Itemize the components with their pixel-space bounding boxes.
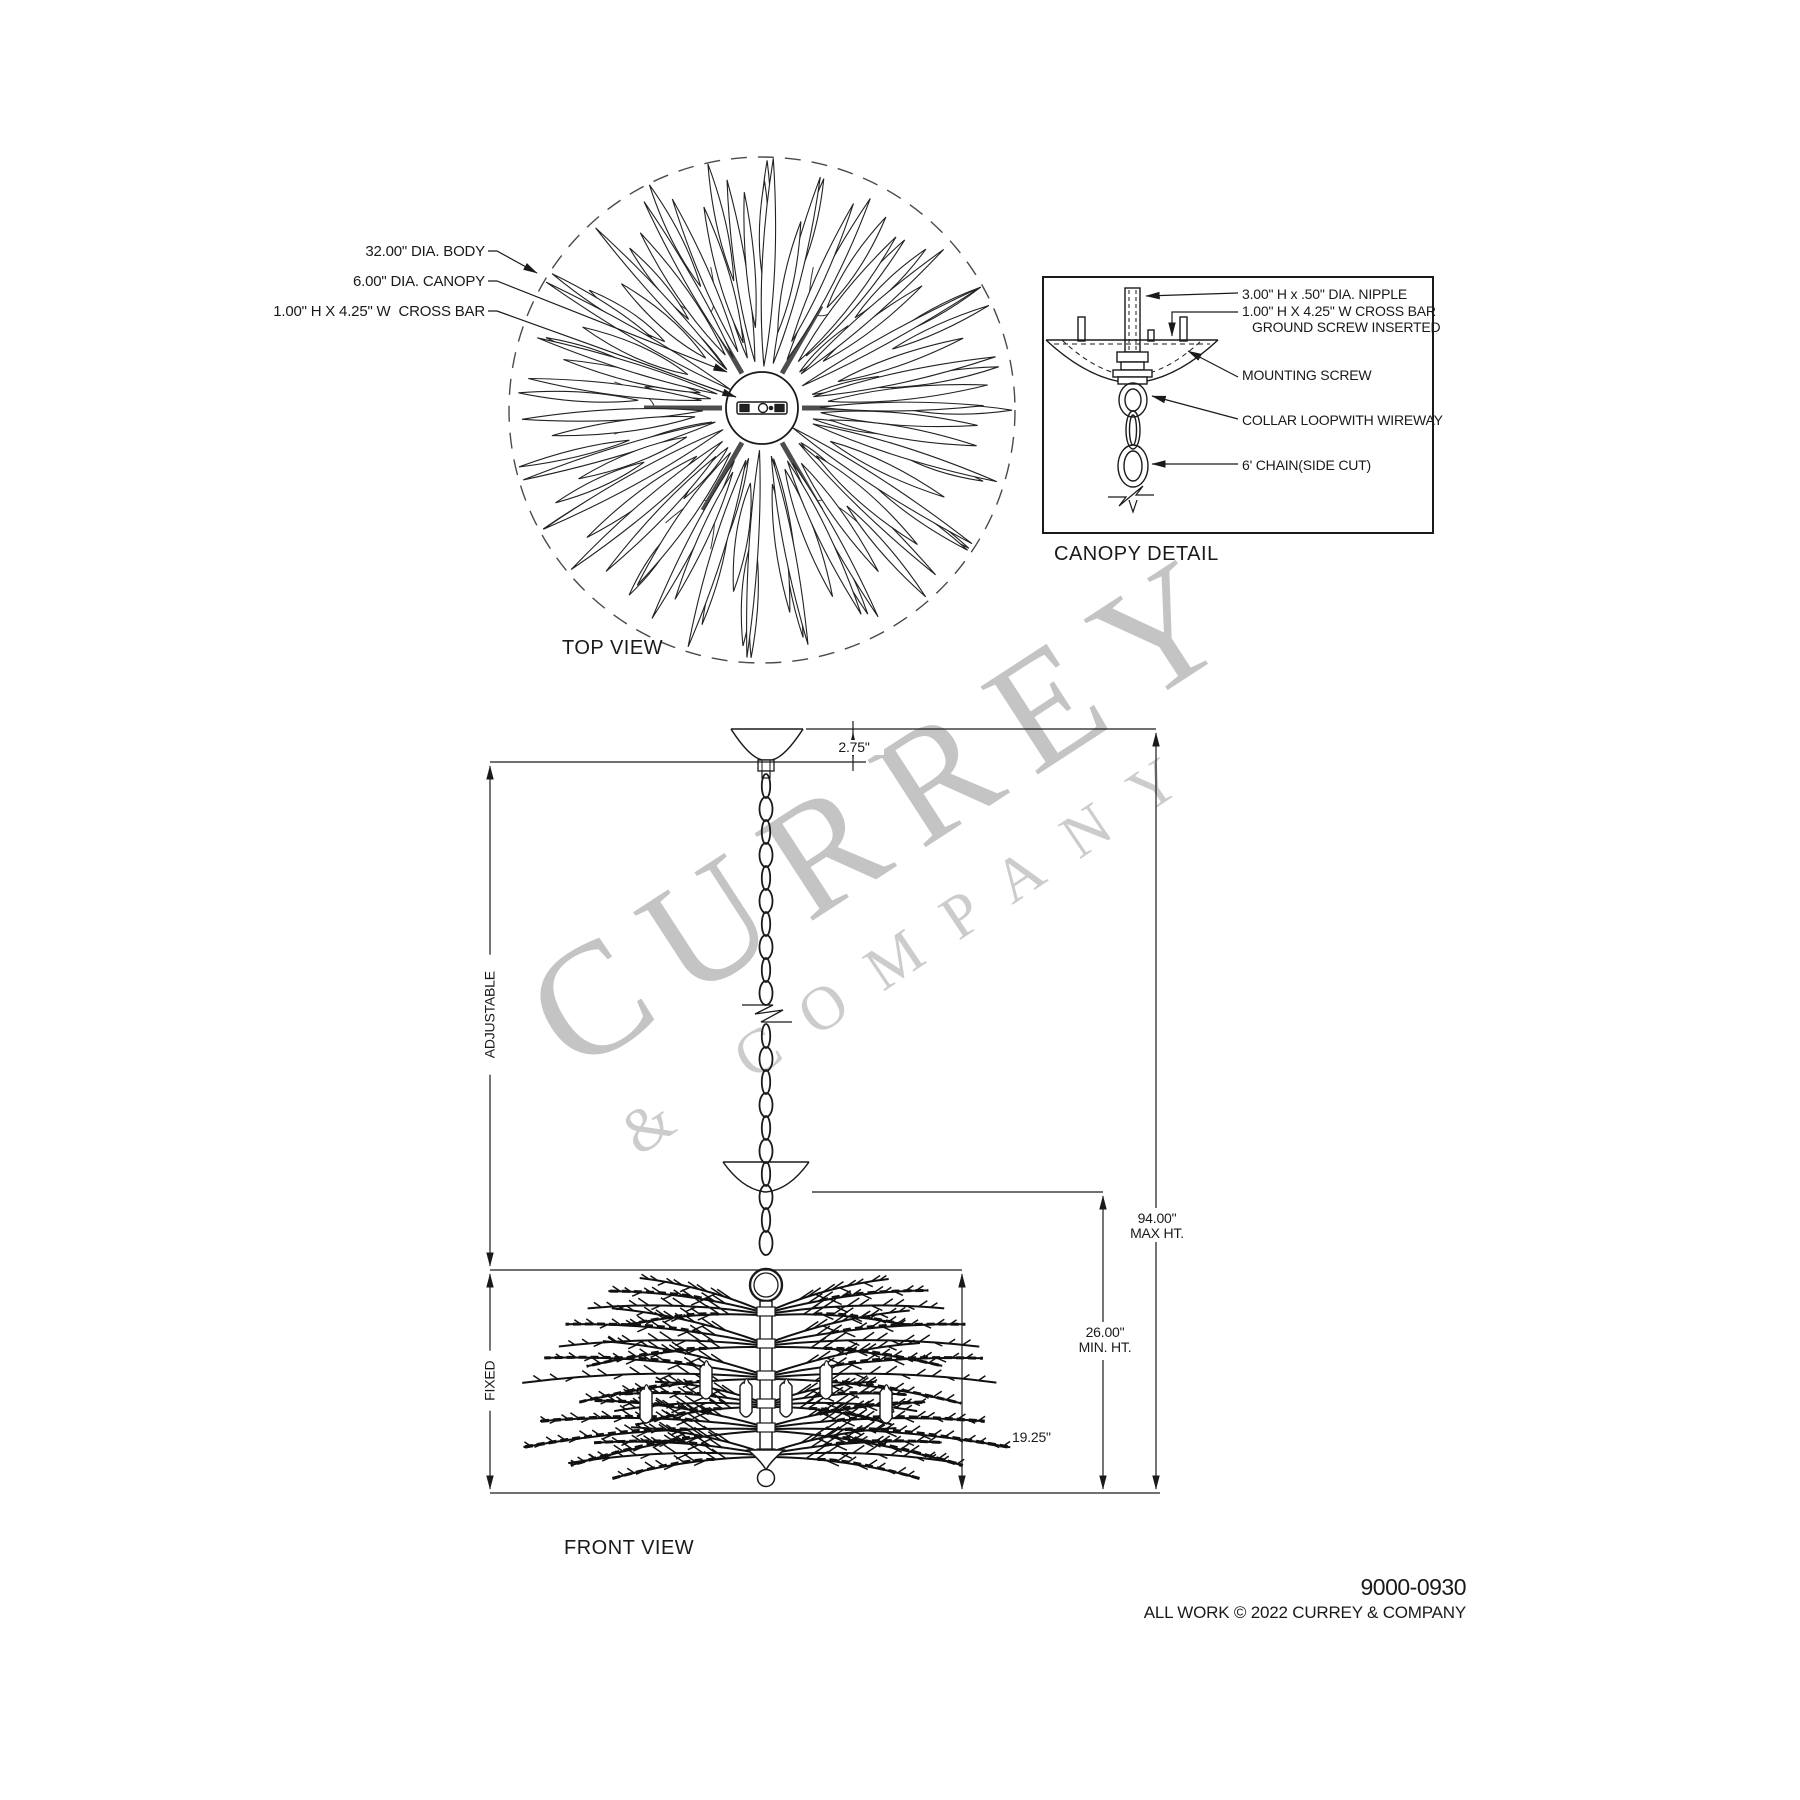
- copyright-text: ALL WORK © 2022 CURREY & COMPANY: [1000, 1602, 1466, 1624]
- dim-max-height: 94.00"MAX HT.: [1110, 1211, 1204, 1242]
- detail-label-chain: 6' CHAIN(SIDE CUT): [1242, 458, 1371, 473]
- spec-sheet: CURREY & COMPANY: [0, 0, 1800, 1800]
- front-view-drawing: [522, 729, 1010, 1487]
- front-view-chandelier-body: [522, 1274, 1010, 1486]
- top-view-label-crossbar: 1.00" H X 4.25" W CROSS BAR: [250, 304, 485, 321]
- dim-adjustable-label: ADJUSTABLE: [482, 955, 497, 1075]
- dim-fixed-label: FIXED: [482, 1351, 497, 1411]
- footer: 9000-0930 ALL WORK © 2022 CURREY & COMPA…: [1000, 1574, 1466, 1624]
- model-number: 9000-0930: [1000, 1574, 1466, 1602]
- front-view-chain: [760, 774, 773, 1255]
- detail-label-collar: COLLAR LOOPWITH WIREWAY: [1242, 413, 1443, 428]
- front-view-lower-canopy: [723, 1162, 809, 1192]
- canopy-detail-title: CANOPY DETAIL: [1054, 543, 1219, 565]
- detail-label-nipple: 3.00" H x .50" DIA. NIPPLE: [1242, 287, 1407, 302]
- top-view-label-canopy: 6.00" DIA. CANOPY: [250, 274, 485, 291]
- dim-min-height-value: 26.00": [1086, 1324, 1125, 1340]
- top-view-label-body: 32.00" DIA. BODY: [250, 244, 485, 261]
- detail-label-crossbar-2: GROUND SCREW INSERTED: [1252, 320, 1440, 335]
- dim-min-height-unit: MIN. HT.: [1079, 1339, 1132, 1355]
- top-view-hub: [726, 372, 798, 444]
- chain-break-symbol: [742, 1005, 792, 1022]
- dim-max-height-value: 94.00": [1138, 1210, 1177, 1226]
- detail-label-mounting: MOUNTING SCREW: [1242, 368, 1371, 383]
- dim-canopy-drop: 2.75": [824, 740, 884, 755]
- detail-label-crossbar-1: 1.00" H X 4.25'' W CROSS BAR: [1242, 304, 1436, 319]
- front-view-title: FRONT VIEW: [564, 1537, 694, 1559]
- top-view-drawing: [488, 157, 1015, 663]
- technical-drawing: [0, 0, 1800, 1800]
- top-view-title: TOP VIEW: [562, 637, 663, 659]
- dim-min-height: 26.00"MIN. HT.: [1058, 1325, 1152, 1356]
- dim-body-height: 19.25": [1012, 1430, 1051, 1445]
- dim-max-height-unit: MAX HT.: [1130, 1225, 1184, 1241]
- canopy-detail-leader-lines: [1146, 293, 1238, 464]
